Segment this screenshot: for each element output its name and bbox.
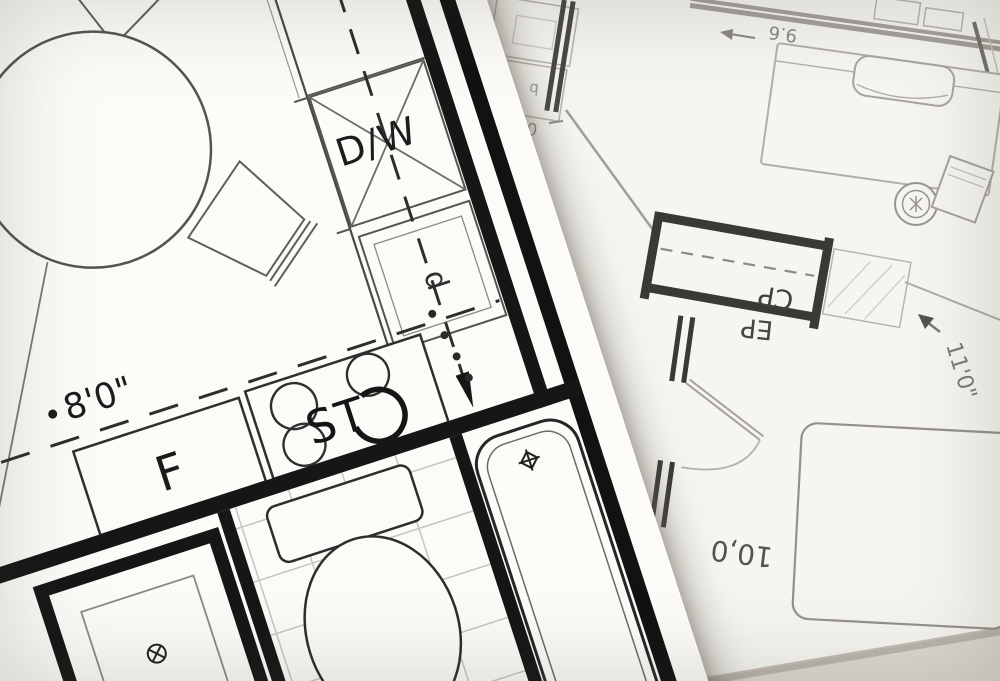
counter-dim-dot	[47, 408, 58, 419]
dining-table	[0, 1, 242, 298]
blueprint-photo: b 0.9 9.6	[0, 0, 1000, 681]
dining-chair	[188, 161, 322, 293]
bed-dimension-label: 9.6	[767, 21, 798, 46]
plant-stool	[895, 183, 937, 225]
toilet	[264, 463, 485, 681]
small-cabinet-label: b	[528, 80, 539, 99]
counter-inner-edge	[216, 0, 299, 98]
entry-label: EP	[739, 311, 774, 344]
counter-dimension-label: 8'0"	[59, 369, 138, 429]
closet-label: CP	[756, 279, 796, 316]
